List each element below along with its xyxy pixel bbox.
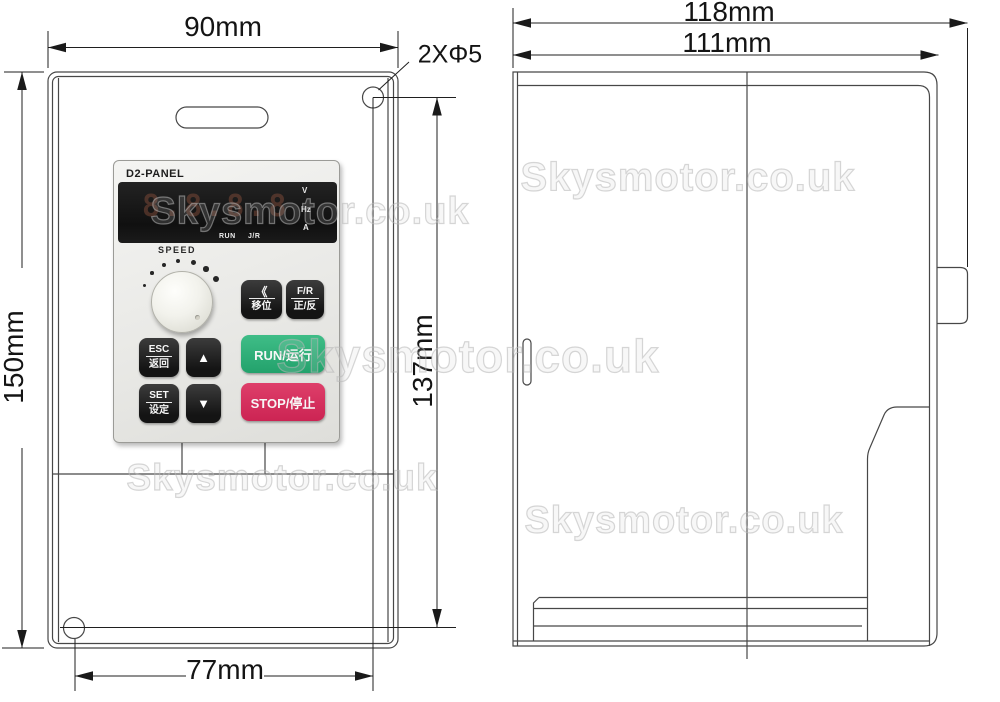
keypad-panel: D2-PANEL 8.8.8.8 V Hz A RUN J/R SPEED 《 … (113, 160, 340, 443)
side-terminal-cover-profile (868, 407, 930, 641)
set-button-top-label: SET (145, 390, 172, 403)
dim-label-side-overall-width: 118mm (683, 0, 774, 26)
technical-drawing-vfd-dimensions: 90mm 150mm 137mm 77mm 2XΦ5 118mm 111mm D… (0, 0, 1000, 702)
set-button-bottom-label: 设定 (146, 402, 172, 417)
hole-callout-label: 2XΦ5 (418, 43, 482, 68)
forward-reverse-button: F/R 正/反 (286, 280, 324, 319)
side-left-slot (523, 339, 531, 385)
knob-scale-dot (143, 284, 146, 287)
dim-label-hole-spacing-horizontal: 77mm (186, 656, 264, 684)
unit-label-hertz: Hz (301, 205, 311, 214)
front-top-slot (176, 107, 268, 128)
seven-segment-display: 8.8.8.8 V Hz A RUN J/R (118, 182, 337, 243)
set-button: SET 设定 (139, 384, 179, 423)
knob-scale-dot (203, 266, 209, 272)
knob-scale-dot (213, 276, 219, 282)
down-arrow-icon: ▼ (197, 396, 210, 411)
knob-scale-dot (150, 271, 154, 275)
stop-button-label: STOP/停止 (251, 393, 316, 412)
side-right-tab (937, 268, 968, 324)
esc-button-bottom-label: 返回 (146, 356, 172, 371)
down-arrow-button: ▼ (186, 384, 221, 423)
speed-label: SPEED (158, 245, 196, 255)
run-button-label: RUN/运行 (254, 345, 312, 364)
side-rail-left-bevel (534, 598, 540, 642)
shift-button-bottom-label: 移位 (249, 298, 275, 313)
panel-model-label: D2-PANEL (126, 168, 184, 180)
unit-label-amps: A (303, 223, 309, 232)
dim-label-front-height: 150mm (0, 310, 28, 403)
shift-button: 《 移位 (241, 280, 282, 319)
knob-scale-dot (191, 260, 196, 265)
side-outer-body (513, 72, 937, 646)
knob-scale-dot (176, 259, 181, 264)
knob-scale-dot (162, 263, 166, 267)
knob-indicator-dot (195, 315, 200, 320)
up-arrow-icon: ▲ (197, 350, 210, 365)
unit-label-volts: V (302, 186, 307, 195)
up-arrow-button: ▲ (186, 338, 221, 377)
status-label-jog-rev: J/R (248, 233, 260, 240)
dim-label-side-body-width: 111mm (682, 29, 771, 57)
shift-button-top-label: 《 (251, 286, 271, 298)
dim-label-hole-spacing-vertical: 137mm (409, 314, 437, 407)
fr-button-top-label: F/R (293, 286, 317, 299)
speed-knob (151, 271, 213, 333)
side-view-outline (513, 72, 968, 659)
status-label-run: RUN (219, 233, 236, 240)
dim-label-front-width: 90mm (184, 13, 262, 41)
display-digits: 8.8.8.8 (142, 189, 289, 224)
run-button: RUN/运行 (241, 335, 325, 373)
stop-button: STOP/停止 (241, 383, 325, 421)
esc-button: ESC 返回 (139, 338, 179, 377)
esc-button-top-label: ESC (145, 344, 174, 357)
fr-button-bottom-label: 正/反 (291, 298, 320, 313)
